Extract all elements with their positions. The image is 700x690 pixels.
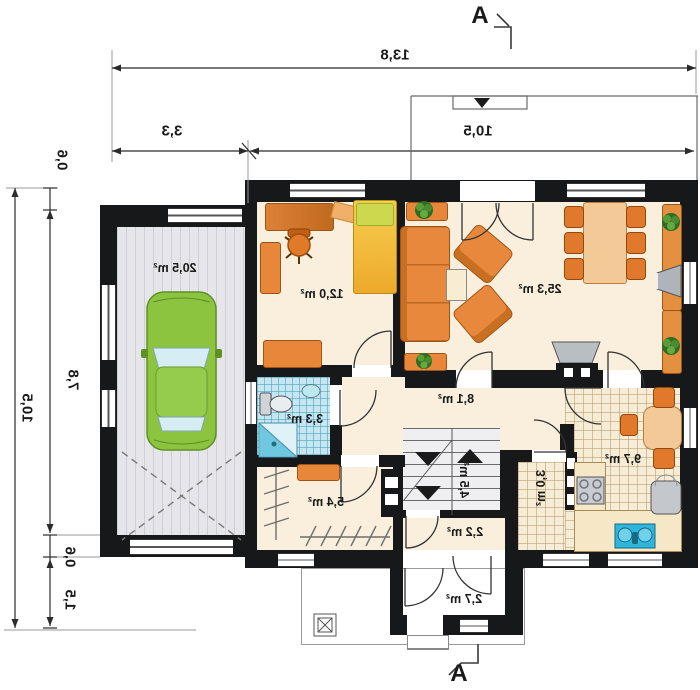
- room-label-stairs: 4,5 m²: [457, 462, 471, 498]
- garage-door: [130, 539, 233, 555]
- window-bathroom: [245, 382, 257, 424]
- dim-garage-width: 3,3: [162, 123, 183, 140]
- dining-chair: [626, 206, 646, 228]
- kitchen-chair: [653, 448, 675, 469]
- section-label-top: A: [471, 2, 488, 30]
- desk: [265, 203, 334, 231]
- room-label-bathroom: 3,3 m²: [287, 412, 323, 426]
- window-garage-left-2: [101, 390, 116, 427]
- sofa: [400, 226, 450, 342]
- window-garage-top: [168, 208, 242, 223]
- door-opening-front: [407, 615, 443, 635]
- window-kitchen-right: [683, 408, 697, 448]
- dim-left-apron: 1,5: [62, 590, 79, 611]
- stairs-niche-slot: [385, 494, 398, 505]
- sideboard-bottom: [662, 310, 682, 374]
- bedroom-wardrobe: [260, 242, 281, 294]
- wall-garage-left: [100, 205, 117, 557]
- window-kitchen-bottom-2: [608, 553, 662, 567]
- wall-right: [680, 180, 698, 568]
- stairs: [403, 428, 500, 515]
- dim-left-total: 10,5: [19, 393, 36, 422]
- window-entry: [460, 619, 488, 633]
- door-opening-entry-inner: [403, 550, 443, 568]
- kitchen-counter-bottom: [574, 510, 682, 552]
- room-label-kitchen: 9,7 m²: [605, 452, 641, 466]
- dim-house-width: 10,5: [463, 123, 492, 140]
- wall-bottom-left: [245, 550, 403, 568]
- room-label-pantry: 3,0 m²: [534, 470, 548, 506]
- dining-table: [583, 202, 627, 284]
- dining-chair: [626, 232, 646, 254]
- dim-left-wall-bottom: 0,6: [62, 547, 79, 568]
- window-garage-left-1: [101, 285, 116, 360]
- dining-chair: [564, 232, 584, 254]
- dining-chair: [564, 258, 584, 280]
- room-label-hall: 8,1 m²: [438, 392, 474, 406]
- section-mark-top: [494, 14, 511, 49]
- dim-top-total: 13,8: [380, 47, 409, 64]
- dim-left-wall-top: 0,6: [54, 150, 71, 171]
- storage-shelf: [297, 464, 340, 481]
- door-opening-hall-living: [456, 370, 492, 388]
- planter-bottom: [404, 353, 447, 371]
- door-opening-kitchen-living: [603, 370, 641, 388]
- terrace-outline: [411, 96, 698, 180]
- kitchen-chair: [653, 387, 675, 408]
- dining-chair: [564, 206, 584, 228]
- bedroom-dresser: [263, 340, 322, 368]
- door-opening-entry-hall: [452, 550, 491, 568]
- terrace-entry-arrow-icon: [474, 98, 490, 108]
- dining-chair: [626, 258, 646, 280]
- door-opening-bedroom: [352, 365, 391, 377]
- room-label-living: 25,3 m²: [518, 282, 561, 296]
- door-opening-pantry: [532, 450, 566, 462]
- kitchen-chair: [620, 414, 638, 436]
- planter-top: [406, 202, 448, 221]
- window-bedroom: [290, 183, 365, 198]
- door-opening-storage: [341, 455, 379, 467]
- floor-plan: A A 13,8 3,3 10,5 10,5 0,6 7,8 0,6 1,5 2…: [0, 0, 700, 690]
- room-label-entry: 2,7 m²: [446, 592, 482, 606]
- bed-pillow: [356, 203, 394, 226]
- room-label-storage: 5,4 m²: [308, 495, 344, 509]
- stairs-niche-slot: [385, 477, 398, 488]
- front-steps: [407, 635, 449, 650]
- window-dining: [567, 183, 645, 198]
- door-opening-bathroom: [330, 385, 342, 425]
- door-opening-corridor: [406, 510, 440, 518]
- wall-house-left: [245, 180, 257, 568]
- room-label-bedroom: 12,0 m²: [300, 287, 343, 301]
- window-kitchen-bottom-1: [543, 553, 589, 567]
- window-storage: [278, 553, 314, 567]
- wall-pantry-left: [505, 450, 518, 550]
- room-label-garage: 20,5 m²: [153, 261, 196, 275]
- section-label-bottom: A: [450, 660, 467, 688]
- sideboard-top: [662, 204, 682, 311]
- side-table: [446, 269, 467, 301]
- door-opening-terrace: [460, 181, 535, 201]
- kitchen-table: [643, 406, 682, 450]
- dim-left-garage-depth: 7,8: [65, 370, 82, 391]
- room-label-corridor: 2,2 m²: [447, 525, 483, 539]
- window-living-right: [683, 262, 697, 304]
